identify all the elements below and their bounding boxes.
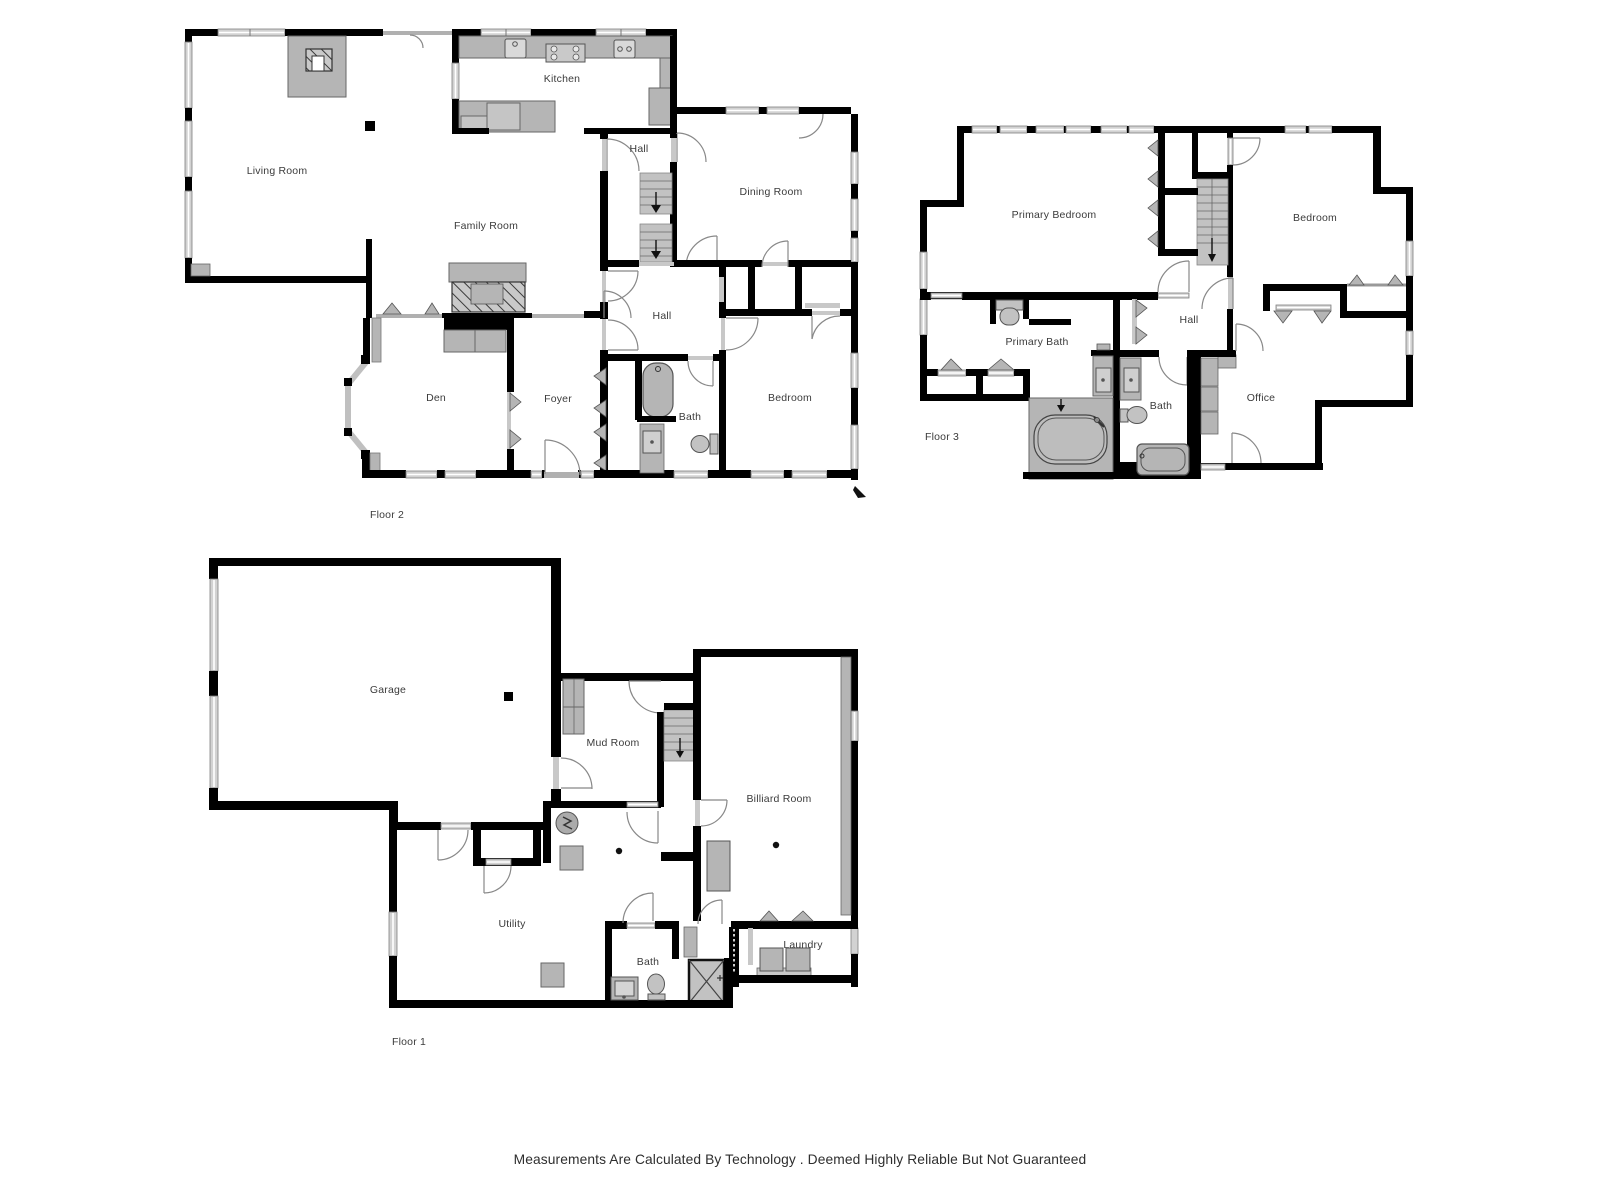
- svg-text:Billiard Room: Billiard Room: [746, 793, 811, 805]
- svg-text:Den: Den: [426, 392, 446, 404]
- svg-text:Floor 1: Floor 1: [392, 1036, 426, 1048]
- svg-text:Family Room: Family Room: [454, 220, 518, 232]
- svg-text:Measurements Are Calculated By: Measurements Are Calculated By Technolog…: [514, 1152, 1087, 1167]
- svg-text:Foyer: Foyer: [544, 393, 572, 405]
- svg-text:Floor 2: Floor 2: [370, 509, 404, 521]
- svg-text:Living Room: Living Room: [247, 165, 308, 177]
- svg-text:Hall: Hall: [653, 310, 672, 322]
- svg-text:Floor 3: Floor 3: [925, 431, 959, 443]
- svg-text:Utility: Utility: [498, 918, 526, 930]
- svg-text:Hall: Hall: [1180, 314, 1199, 326]
- svg-text:Dining Room: Dining Room: [740, 186, 803, 198]
- svg-text:Kitchen: Kitchen: [544, 73, 580, 85]
- svg-text:Bedroom: Bedroom: [768, 392, 812, 404]
- svg-text:Laundry: Laundry: [783, 939, 823, 951]
- svg-text:Bath: Bath: [679, 411, 701, 423]
- svg-text:Office: Office: [1247, 392, 1275, 404]
- svg-text:Hall: Hall: [630, 143, 649, 155]
- svg-text:Mud Room: Mud Room: [587, 737, 640, 749]
- svg-text:Garage: Garage: [370, 684, 406, 696]
- svg-text:Bath: Bath: [1150, 400, 1172, 412]
- svg-text:Bedroom: Bedroom: [1293, 212, 1337, 224]
- svg-text:Primary Bath: Primary Bath: [1005, 336, 1068, 348]
- svg-text:Primary Bedroom: Primary Bedroom: [1012, 209, 1097, 221]
- svg-text:Bath: Bath: [637, 956, 659, 968]
